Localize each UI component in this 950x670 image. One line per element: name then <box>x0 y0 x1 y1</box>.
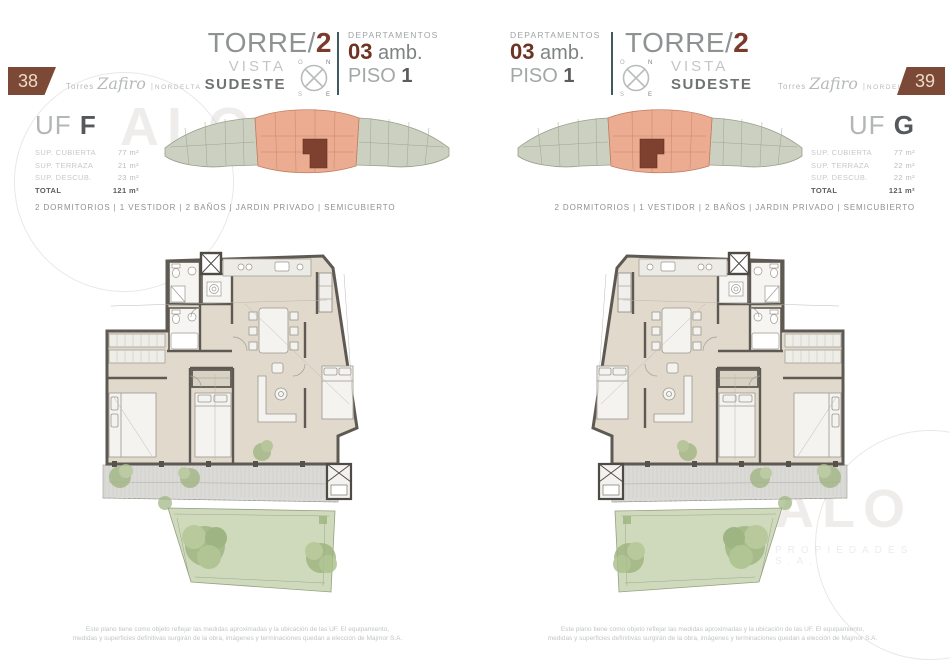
page-number: 38 <box>18 71 38 92</box>
compass-icon: O N S E <box>294 55 334 97</box>
brand-logo: Torres Zafiro | NORDELTA <box>778 74 913 93</box>
ambientes-label: amb. <box>378 42 422 64</box>
department-block: DEPARTAMENTOS 03 amb. PISO 1 <box>510 30 601 87</box>
page-number-badge: 38 <box>8 67 56 95</box>
total-label: TOTAL <box>35 185 61 198</box>
surface-label: SUP. CUBIERTA <box>811 147 872 160</box>
compass-east: E <box>326 92 330 97</box>
surface-value: 77 m² <box>894 147 915 160</box>
ambientes-number: 03 <box>348 39 372 64</box>
ambientes-number: 03 <box>510 39 534 64</box>
total-value: 121 m² <box>889 185 915 198</box>
logo-prefix: Torres <box>778 82 806 91</box>
department-block: DEPARTAMENTOS 03 amb. PISO 1 <box>348 30 439 87</box>
uf-label: UF <box>35 110 72 140</box>
disclaimer-line-1: Este plano tiene como objeto reflejar la… <box>503 626 922 635</box>
disclaimer-text: Este plano tiene como objeto reflejar la… <box>503 626 922 643</box>
key-plan-shape <box>165 109 449 173</box>
tower-number: 2 <box>733 27 749 58</box>
disclaimer-line-1: Este plano tiene como objeto reflejar la… <box>28 626 447 635</box>
piso-label: PISO <box>348 65 396 87</box>
surface-value: 77 m² <box>118 147 139 160</box>
surface-row: SUP. CUBIERTA77 m² <box>35 147 139 160</box>
tower-title: TORRE/2 <box>625 28 777 58</box>
surface-row: SUP. CUBIERTA77 m² <box>811 147 915 160</box>
building-key-plan <box>157 104 459 188</box>
surface-label: SUP. CUBIERTA <box>35 147 96 160</box>
logo-prefix: Torres <box>66 82 94 91</box>
surface-label: SUP. TERRAZA <box>811 160 869 173</box>
unit-info-block: UF F SUP. CUBIERTA77 m² SUP. TERRAZA21 m… <box>35 110 139 197</box>
building-key-plan <box>508 104 810 188</box>
surface-label: SUP. DESCUB. <box>811 172 868 185</box>
unit-info-block: UF G SUP. CUBIERTA77 m² SUP. TERRAZA22 m… <box>811 110 915 197</box>
brochure-spread: ALO 38 Torres Zafiro | NORDELTA TORRE/2 … <box>0 0 950 670</box>
surface-row: SUP. TERRAZA22 m² <box>811 160 915 173</box>
tower-label: TORRE/ <box>208 27 316 58</box>
total-value: 121 m² <box>113 185 139 198</box>
surface-value: 21 m² <box>118 160 139 173</box>
floor-plan <box>570 246 855 611</box>
page-number: 39 <box>915 71 935 92</box>
uf-letter: G <box>894 110 915 140</box>
page-38: ALO 38 Torres Zafiro | NORDELTA TORRE/2 … <box>0 0 475 670</box>
direction-label: SUDESTE <box>625 75 777 94</box>
surface-label: SUP. TERRAZA <box>35 160 93 173</box>
surface-label: SUP. DESCUB. <box>35 172 92 185</box>
surface-total-row: TOTAL121 m² <box>35 185 139 198</box>
disclaimer-text: Este plano tiene como objeto reflejar la… <box>28 626 447 643</box>
surface-row: SUP. TERRAZA21 m² <box>35 160 139 173</box>
logo-script-name: Zafiro <box>809 74 858 93</box>
surface-value: 22 m² <box>894 160 915 173</box>
page-number-badge: 39 <box>897 67 945 95</box>
header-divider <box>611 32 613 95</box>
tower-label: TORRE/ <box>625 27 733 58</box>
surface-row: SUP. DESCUB.23 m² <box>35 172 139 185</box>
compass-west: O <box>298 60 303 66</box>
logo-script-name: Zafiro <box>97 74 146 93</box>
surface-value: 22 m² <box>894 172 915 185</box>
piso-number: 1 <box>563 65 574 87</box>
disclaimer-line-2: medidas y superficies definitivas surgir… <box>28 635 447 644</box>
piso-number: 1 <box>401 65 412 87</box>
features-line: 2 DORMITORIOS | 1 VESTIDOR | 2 BAÑOS | J… <box>35 203 396 212</box>
surface-row: SUP. DESCUB.22 m² <box>811 172 915 185</box>
vista-label: VISTA <box>625 58 777 75</box>
disclaimer-line-2: medidas y superficies definitivas surgir… <box>503 635 922 644</box>
ambientes-label: amb. <box>540 42 584 64</box>
tower-title-block: TORRE/2 VISTA SUDESTE <box>625 28 777 94</box>
header-divider <box>337 32 339 95</box>
uf-label: UF <box>849 110 886 140</box>
compass-south: S <box>298 92 302 97</box>
surface-value: 23 m² <box>118 172 139 185</box>
key-plan-shape <box>518 109 802 173</box>
tower-title: TORRE/2 <box>180 28 332 58</box>
features-line: 2 DORMITORIOS | 1 VESTIDOR | 2 BAÑOS | J… <box>554 203 915 212</box>
compass-north: N <box>326 60 330 66</box>
logo-divider: | <box>863 82 865 91</box>
tower-number: 2 <box>316 27 332 58</box>
piso-label: PISO <box>510 65 558 87</box>
uf-letter: F <box>80 110 97 140</box>
floor-plan <box>95 246 380 611</box>
compass-south: S <box>620 92 624 97</box>
surface-total-row: TOTAL121 m² <box>811 185 915 198</box>
floor-plan-shape <box>593 253 847 592</box>
logo-divider: | <box>151 82 153 91</box>
surface-table: SUP. CUBIERTA77 m² SUP. TERRAZA21 m² SUP… <box>35 147 139 197</box>
floor-plan-shape <box>103 253 357 592</box>
page-39: ALO PROPIEDADES S.A. DEPARTAMENTOS 03 am… <box>475 0 950 670</box>
total-label: TOTAL <box>811 185 837 198</box>
surface-table: SUP. CUBIERTA77 m² SUP. TERRAZA22 m² SUP… <box>811 147 915 197</box>
